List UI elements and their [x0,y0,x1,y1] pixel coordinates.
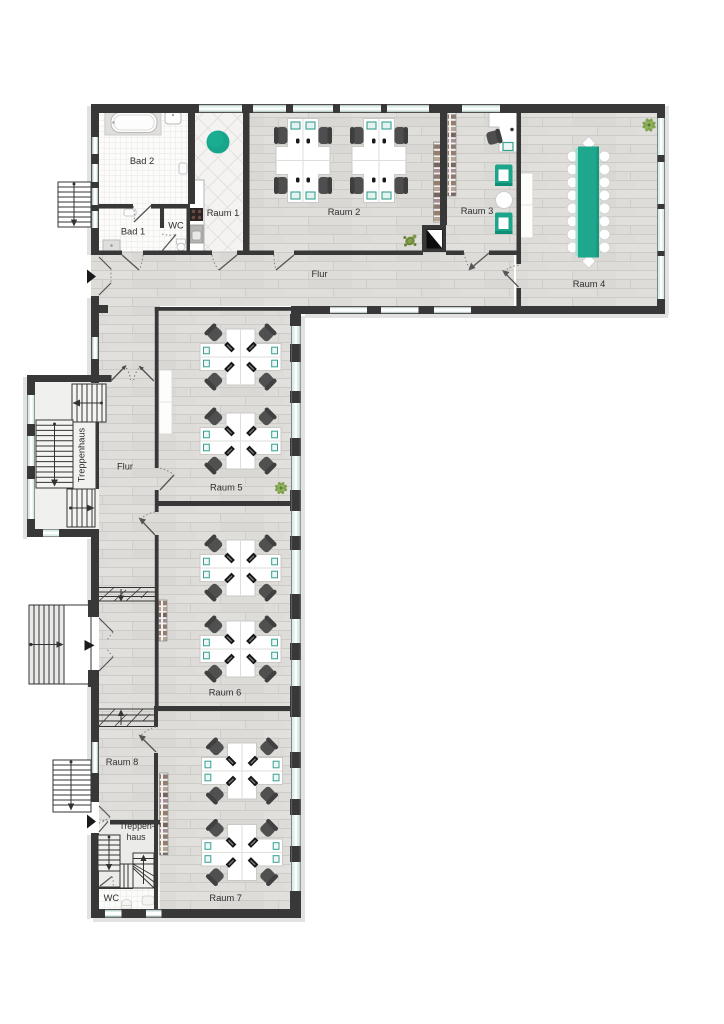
svg-text:Raum 7: Raum 7 [209,893,242,903]
svg-text:haus: haus [126,832,146,842]
svg-text:Raum 2: Raum 2 [328,207,361,217]
svg-text:Raum 3: Raum 3 [461,206,494,216]
svg-text:Treppen-: Treppen- [119,821,154,831]
svg-text:Raum 1: Raum 1 [207,208,240,218]
svg-text:Flur: Flur [311,269,327,279]
svg-text:WC: WC [168,221,184,231]
svg-text:Raum 6: Raum 6 [209,688,242,698]
svg-text:Treppenhaus: Treppenhaus [77,427,87,482]
svg-text:Raum 4: Raum 4 [573,279,606,289]
svg-text:WC: WC [104,893,120,903]
svg-text:Bad 1: Bad 1 [121,227,145,237]
svg-text:Bad 2: Bad 2 [130,156,154,166]
svg-text:Raum 8: Raum 8 [106,757,139,767]
svg-text:Flur: Flur [117,462,133,472]
svg-text:Raum 5: Raum 5 [210,483,243,493]
